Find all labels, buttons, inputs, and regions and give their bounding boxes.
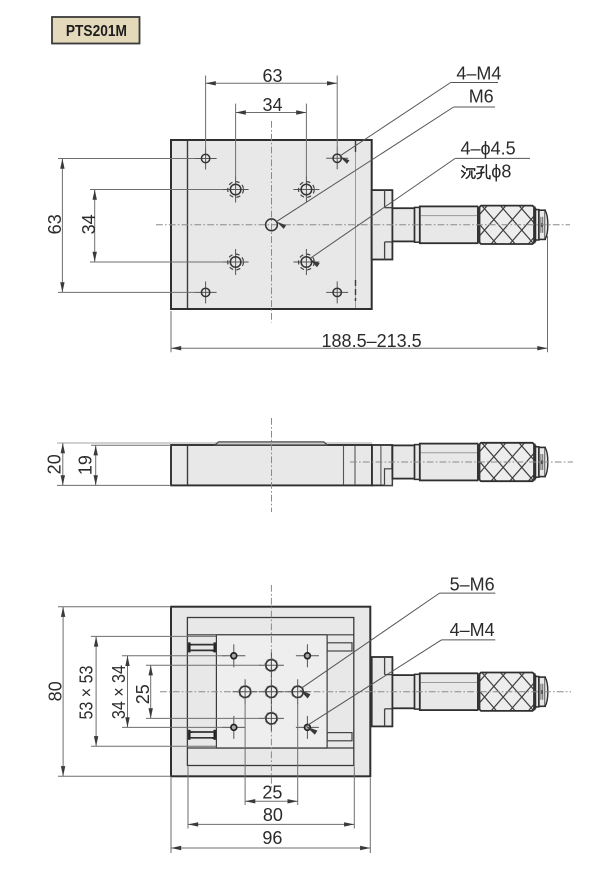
svg-text:PTS201M: PTS201M (66, 23, 127, 40)
svg-text:4–M4: 4–M4 (450, 620, 495, 640)
svg-text:63: 63 (262, 66, 282, 86)
svg-text:34: 34 (79, 214, 99, 234)
svg-text:5–M6: 5–M6 (450, 575, 495, 595)
svg-text:96: 96 (262, 828, 282, 848)
svg-text:25: 25 (262, 783, 282, 803)
svg-text:20: 20 (44, 454, 64, 474)
svg-text:M6: M6 (469, 86, 494, 106)
svg-text:80: 80 (263, 805, 283, 825)
svg-text:34: 34 (262, 95, 282, 115)
svg-text:63: 63 (45, 214, 65, 234)
svg-text:4–M4: 4–M4 (456, 64, 501, 84)
svg-text:188.5–213.5: 188.5–213.5 (322, 331, 422, 351)
svg-text:53 × 53: 53 × 53 (77, 666, 97, 720)
svg-text:ϕ8: ϕ8 (491, 161, 511, 181)
svg-text:34 × 34: 34 × 34 (109, 665, 129, 719)
svg-text:4–ϕ4.5: 4–ϕ4.5 (461, 138, 516, 158)
svg-text:80: 80 (45, 681, 65, 701)
svg-text:25: 25 (133, 684, 153, 704)
svg-text:19: 19 (76, 455, 96, 475)
